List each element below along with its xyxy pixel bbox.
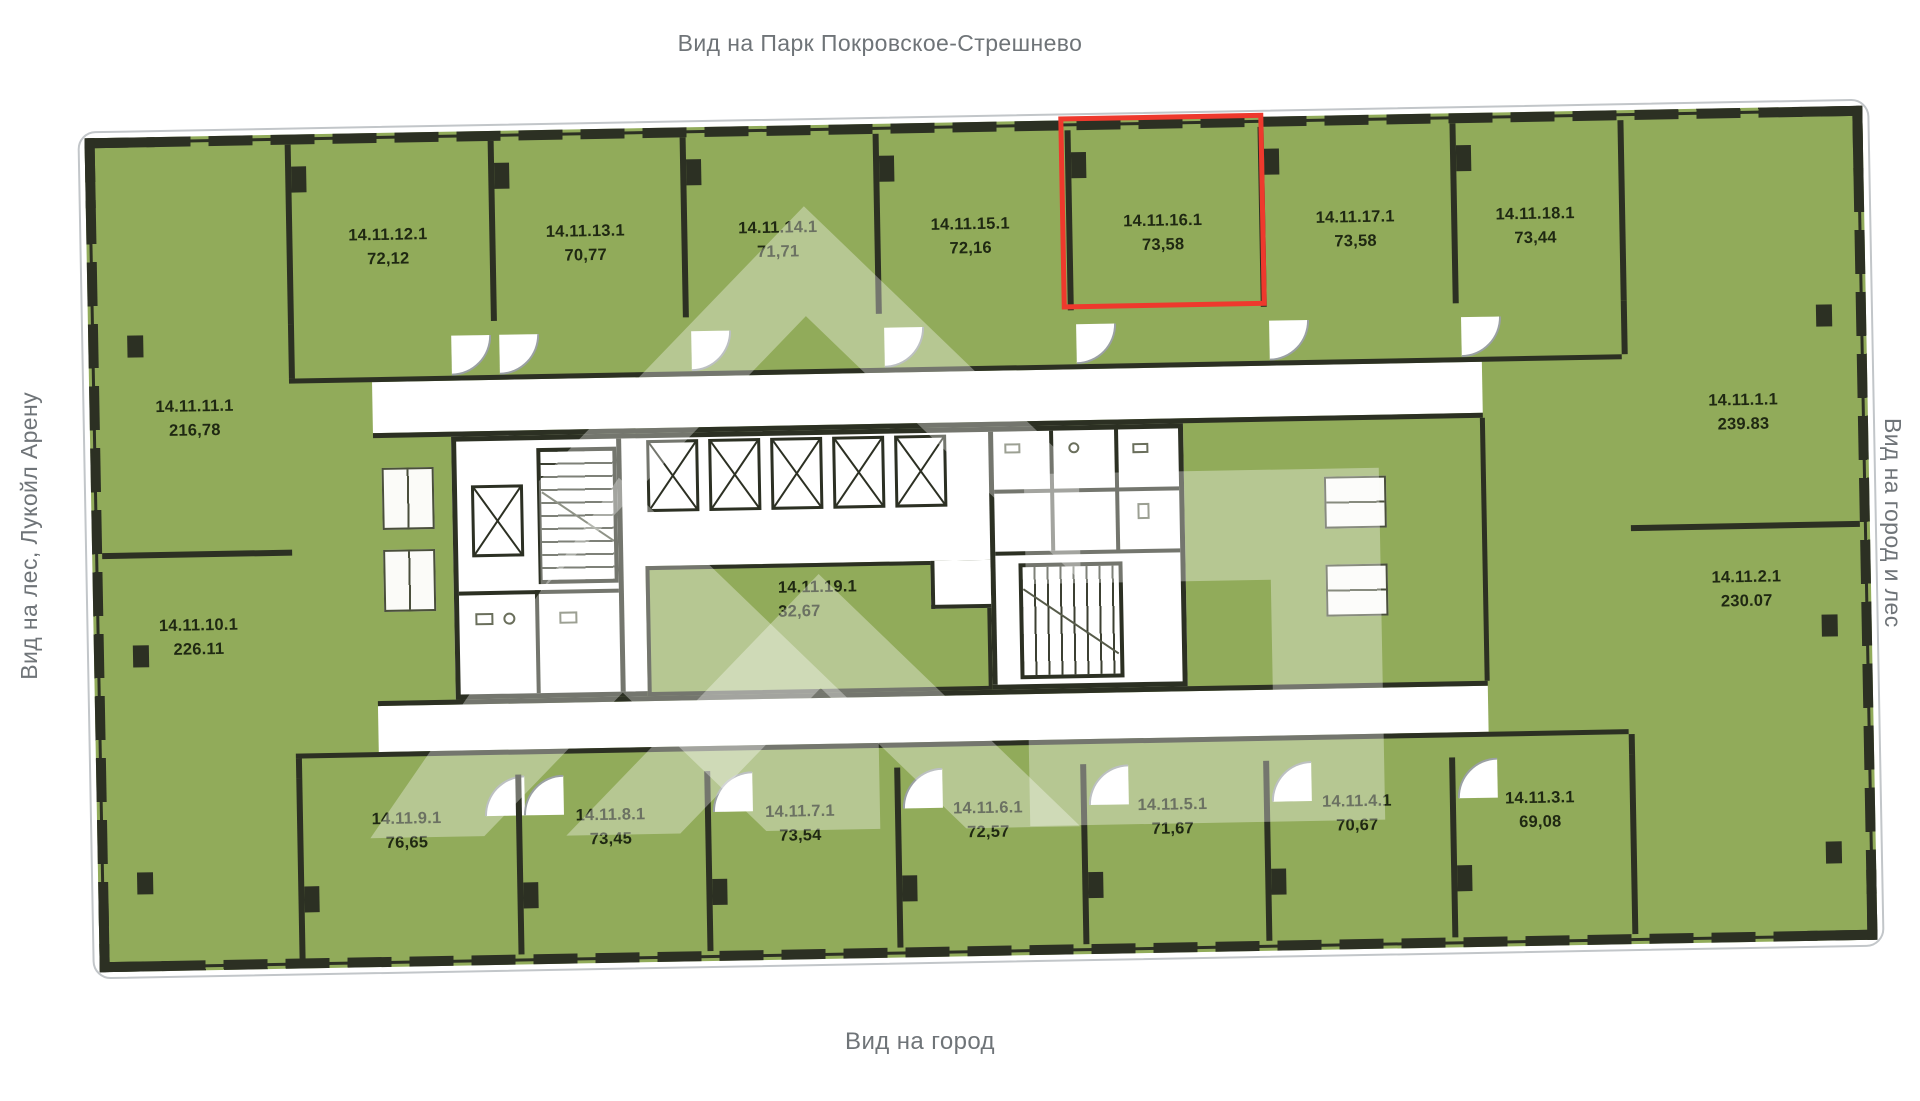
unit-14-11-3-1[interactable]: 14.11.3.1 69,08: [1449, 734, 1633, 937]
unit-14-11-15-1[interactable]: 14.11.15.1 72,16: [873, 130, 1069, 367]
unit-id: 14.11.14.1: [738, 215, 818, 240]
unit-area: 230.07: [1721, 589, 1773, 614]
unit-id: 14.11.1.1: [1708, 387, 1778, 412]
unit-area: 72,12: [367, 246, 410, 271]
view-label-south: Вид на город: [0, 1028, 1840, 1056]
unit-area: 72,16: [949, 236, 992, 261]
unit-area: 71,71: [757, 239, 800, 264]
unit-14-11-17-1[interactable]: 14.11.17.1 73,58: [1257, 123, 1453, 360]
view-label-west: Вид на лес, Лукойл Арену: [16, 392, 43, 680]
unit-14-11-14-1[interactable]: 14.11.14.1 71,71: [680, 134, 877, 371]
elevator-shaft: [894, 435, 947, 508]
unit-area: 216,78: [169, 418, 221, 443]
toilet-fixture: [1068, 442, 1079, 453]
unit-id: 14.11.8.1: [575, 802, 645, 827]
unit-area: 71,67: [1151, 816, 1194, 841]
unit-14-11-11-1[interactable]: 14.11.11.1 216,78: [95, 145, 292, 553]
unit-area: 73,45: [590, 826, 633, 851]
unit-id: 14.11.15.1: [930, 211, 1010, 236]
staircase: [536, 447, 618, 584]
unit-14-11-4-1[interactable]: 14.11.4.1 70,67: [1263, 737, 1453, 940]
unit-area: 69,08: [1519, 809, 1562, 834]
unit-id: 14.11.9.1: [371, 806, 441, 831]
wall-segment: [994, 486, 1179, 493]
unit-id: 14.11.12.1: [348, 222, 428, 247]
wall-segment: [995, 548, 1180, 555]
sink-fixture: [475, 613, 493, 625]
unit-id: 14.11.2.1: [1711, 564, 1781, 589]
unit-area: 72,57: [967, 820, 1010, 845]
desk-icon: [1326, 564, 1389, 617]
unit-area: 32,67: [778, 599, 821, 624]
unit-id: 14.11.10.1: [159, 613, 239, 638]
unit-14-11-6-1[interactable]: 14.11.6.1 72,57: [894, 744, 1084, 947]
sink-fixture: [559, 611, 577, 623]
unit-id: 14.11.6.1: [953, 795, 1023, 820]
wall-corner: [1852, 106, 1863, 176]
closet-notch: [930, 560, 991, 609]
desk-icon: [382, 467, 435, 530]
wall-segment: [535, 590, 541, 693]
unit-14-11-8-1[interactable]: 14.11.8.1 73,45: [515, 751, 708, 954]
unit-area: 70,67: [1336, 813, 1379, 838]
elevator-shaft: [770, 437, 823, 510]
unit-id: 14.11.11.1: [155, 394, 234, 419]
unit-area: 226.11: [173, 637, 224, 662]
wall-corner: [100, 961, 170, 972]
unit-id: 14.11.13.1: [546, 218, 626, 243]
unit-14-11-7-1[interactable]: 14.11.7.1 73,54: [704, 748, 898, 951]
unit-14-11-10-1[interactable]: 14.11.10.1 226.11: [102, 556, 299, 958]
view-label-north: Вид на Парк Покровское-Стрешнево: [0, 30, 1760, 57]
wall-corner: [1866, 870, 1877, 940]
staircase: [1018, 561, 1124, 679]
floor-plan: 14.11.12.1 72,12 14.11.13.1 70,77 14.11.…: [77, 99, 1884, 980]
unit-id: 14.11.4.1: [1322, 789, 1392, 814]
unit-area: 73,54: [779, 823, 822, 848]
sink-fixture: [1004, 443, 1020, 453]
desk-icon: [383, 549, 436, 612]
unit-14-11-1-1[interactable]: 14.11.1.1 239.83: [1623, 116, 1859, 525]
unit-14-11-5-1[interactable]: 14.11.5.1 71,67: [1080, 741, 1267, 944]
elevator-shaft: [646, 439, 699, 512]
unit-id: 14.11.17.1: [1315, 204, 1395, 229]
floor-plan-page: Вид на Парк Покровское-Стрешнево Вид на …: [0, 0, 1920, 1101]
toilet-fixture: [1137, 503, 1149, 519]
unit-id: 14.11.7.1: [765, 799, 835, 824]
unit-area: 239.83: [1717, 412, 1769, 437]
unit-area: 76,65: [386, 830, 429, 855]
toilet-fixture: [503, 613, 515, 625]
unit-id: 14.11.18.1: [1495, 201, 1575, 226]
unit-area: 73,44: [1514, 225, 1557, 250]
sink-fixture: [1132, 443, 1148, 453]
unit-14-11-12-1[interactable]: 14.11.12.1 72,12: [285, 141, 492, 379]
unit-14-11-9-1[interactable]: 14.11.9.1 76,65: [296, 755, 519, 959]
selected-unit-highlight[interactable]: [1058, 113, 1267, 310]
elevator-shaft: [471, 484, 524, 557]
unit-14-11-18-1[interactable]: 14.11.18.1 73,44: [1449, 120, 1621, 357]
unit-area: 70,77: [564, 243, 607, 268]
unit-id: 14.11.5.1: [1137, 792, 1207, 817]
unit-id: 14.11.19.1: [778, 574, 858, 599]
desk-icon: [1324, 476, 1387, 529]
unit-id: 14.11.3.1: [1505, 785, 1575, 810]
unit-area: 73,58: [1334, 229, 1377, 254]
unit-14-11-2-1[interactable]: 14.11.2.1 230.07: [1631, 527, 1867, 930]
unit-14-11-13-1[interactable]: 14.11.13.1 70,77: [488, 137, 684, 374]
elevator-shaft: [708, 438, 761, 511]
view-label-east: Вид на город и лес: [1879, 418, 1906, 628]
elevator-shaft: [832, 436, 885, 509]
